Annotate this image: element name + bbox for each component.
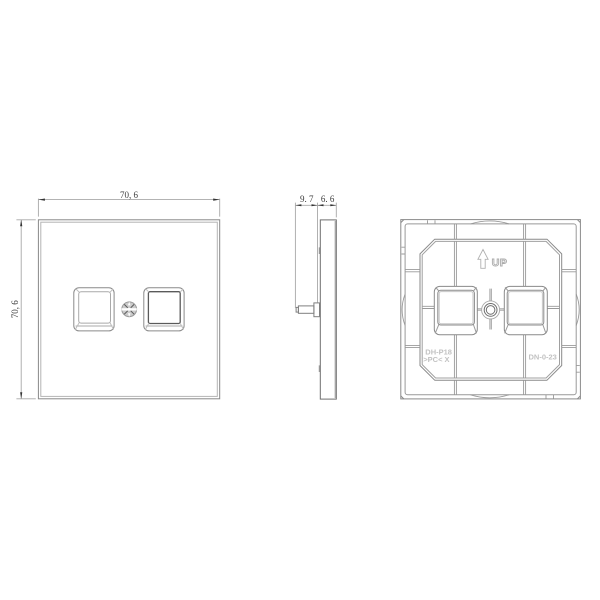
svg-text:70, 6: 70, 6 — [10, 300, 20, 319]
svg-text:UP: UP — [492, 257, 508, 269]
svg-text:DN-0-23: DN-0-23 — [529, 353, 557, 362]
svg-text:70, 6: 70, 6 — [120, 190, 139, 200]
svg-text:6. 6: 6. 6 — [321, 194, 335, 204]
svg-text:>PC< X: >PC< X — [423, 355, 449, 364]
svg-text:9. 7: 9. 7 — [300, 194, 314, 204]
